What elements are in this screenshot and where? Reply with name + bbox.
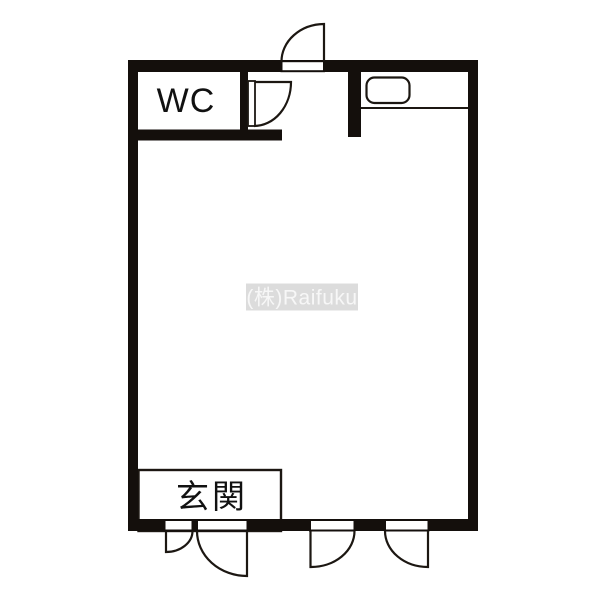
- wall-wc-right: [240, 72, 248, 136]
- watermark: (株)Raifuku: [246, 284, 358, 311]
- entry-large-door-swing-icon: [197, 531, 247, 576]
- wc-door-swing-icon: [254, 82, 291, 126]
- genkan-label: 玄関: [176, 478, 248, 515]
- wc-door-panel: [248, 81, 255, 126]
- wall-right: [468, 60, 478, 531]
- door-b-swing-icon: [385, 531, 428, 567]
- door-a-swing-icon: [311, 531, 355, 567]
- opening-door-a: [310, 520, 355, 531]
- kitchen-sink-icon: [367, 78, 410, 104]
- opening-entry-large: [197, 520, 248, 531]
- wc-label: WC: [157, 82, 216, 120]
- floorplan-svg: WC 玄関 (株)Raifuku: [0, 0, 600, 600]
- entry-small-door-swing-icon: [166, 531, 193, 552]
- top-door-swing-icon: [282, 24, 325, 62]
- opening-top-door: [282, 61, 325, 71]
- wall-kitchen-stub: [348, 72, 361, 137]
- wall-wc-bottom: [133, 130, 282, 141]
- opening-entry-small: [165, 520, 193, 531]
- opening-door-b: [385, 520, 429, 531]
- watermark-text: (株)Raifuku: [246, 287, 357, 310]
- kitchen-counter: [361, 78, 468, 109]
- floorplan-canvas: WC 玄関 (株)Raifuku: [0, 0, 600, 600]
